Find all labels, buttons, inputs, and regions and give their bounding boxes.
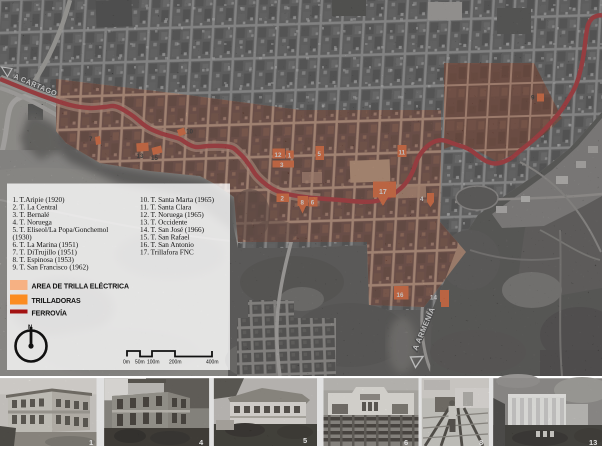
svg-text:FERROVÍA: FERROVÍA [32, 309, 67, 318]
svg-text:AREA DE TRILLA ELÉCTRICA: AREA DE TRILLA ELÉCTRICA [32, 282, 129, 291]
svg-text:200m: 200m [169, 360, 182, 366]
svg-text:9. T. San Francisco (1962): 9. T. San Francisco (1962) [13, 264, 90, 272]
svg-text:400m: 400m [206, 360, 219, 366]
svg-text:TRILLADORAS: TRILLADORAS [32, 298, 81, 305]
svg-text:17. Trillafora FNC: 17. Trillafora FNC [140, 249, 194, 257]
svg-text:50m: 50m [135, 360, 145, 366]
svg-text:N: N [28, 325, 32, 331]
svg-text:0m: 0m [123, 360, 130, 366]
svg-text:100m: 100m [147, 360, 160, 366]
